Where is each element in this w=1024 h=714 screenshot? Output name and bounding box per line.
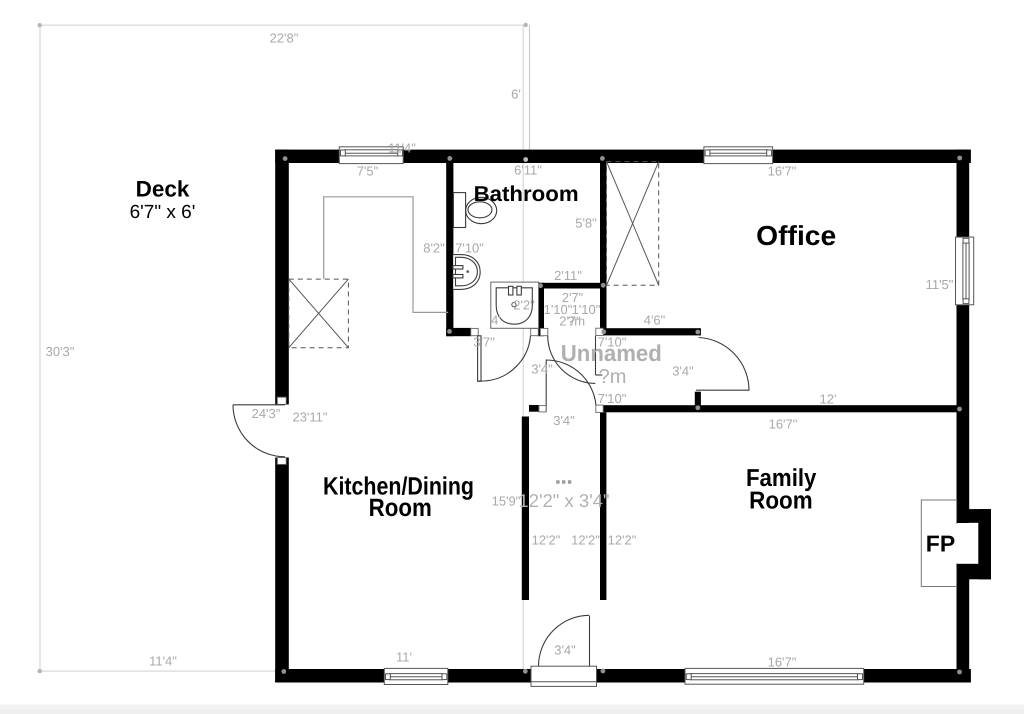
svg-text:11': 11' <box>396 650 412 665</box>
svg-text:2'2": 2'2" <box>513 298 535 313</box>
svg-text:3'4": 3'4" <box>672 364 694 379</box>
svg-text:Deck: Deck <box>136 177 190 202</box>
svg-text:16'7": 16'7" <box>769 417 798 432</box>
svg-text:12'2": 12'2" <box>532 533 561 548</box>
svg-text:3'4": 3'4" <box>553 413 575 428</box>
svg-text:?m: ?m <box>567 313 585 328</box>
svg-text:8'2": 8'2" <box>423 241 445 256</box>
svg-text:Room: Room <box>369 494 432 522</box>
svg-text:6'7" x 6': 6'7" x 6' <box>130 202 196 223</box>
svg-text:24'3": 24'3" <box>252 406 281 421</box>
svg-text:11'4": 11'4" <box>388 141 416 156</box>
svg-text:7'5": 7'5" <box>357 164 379 179</box>
svg-text:12': 12' <box>820 392 837 407</box>
svg-text:2'11": 2'11" <box>554 268 582 283</box>
svg-text:Office: Office <box>756 220 836 251</box>
svg-text:Bathroom: Bathroom <box>474 182 579 206</box>
svg-text:23'11": 23'11" <box>292 410 327 425</box>
svg-text:15'9": 15'9" <box>492 494 521 509</box>
svg-text:16'7": 16'7" <box>768 164 797 179</box>
svg-text:7'10": 7'10" <box>598 391 627 406</box>
svg-text:3'7": 3'7" <box>473 335 495 350</box>
svg-text:4': 4' <box>491 313 501 328</box>
svg-text:3'4": 3'4" <box>531 362 553 377</box>
svg-text:FP: FP <box>926 531 955 557</box>
svg-text:?m: ?m <box>599 366 627 388</box>
svg-text:6': 6' <box>511 87 521 102</box>
svg-text:16'7": 16'7" <box>768 655 797 670</box>
svg-text:3'4": 3'4" <box>554 643 576 658</box>
svg-text:Room: Room <box>749 487 813 514</box>
svg-text:11'4": 11'4" <box>149 654 177 669</box>
svg-text:22'8": 22'8" <box>270 31 299 46</box>
svg-text:7'10": 7'10" <box>598 335 627 350</box>
svg-text:6'11": 6'11" <box>514 163 542 178</box>
svg-text:12'2": 12'2" <box>608 533 637 548</box>
svg-text:11'5": 11'5" <box>926 277 954 292</box>
svg-text:4'6": 4'6" <box>644 313 666 328</box>
svg-text:12'2": 12'2" <box>571 533 600 548</box>
svg-text:7'10": 7'10" <box>455 241 484 256</box>
svg-text:5'8": 5'8" <box>575 216 597 231</box>
svg-text:30'3": 30'3" <box>46 344 75 359</box>
svg-text:12'2" x 3'4": 12'2" x 3'4" <box>518 490 609 511</box>
